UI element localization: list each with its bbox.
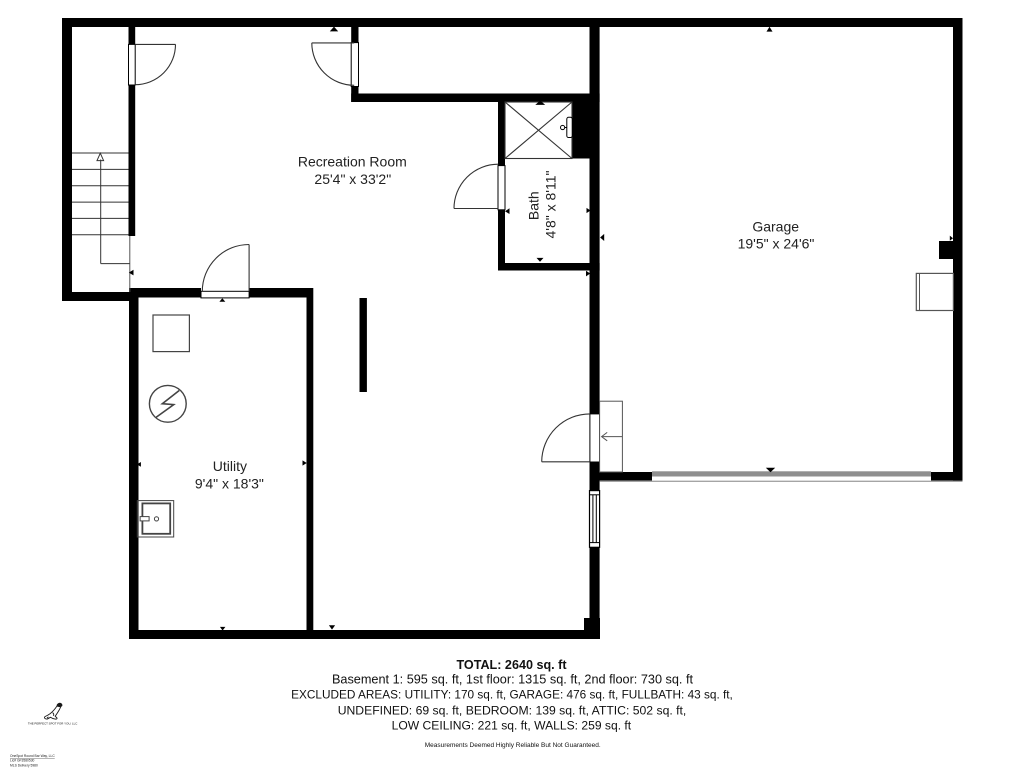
svg-text:EXCLUDED AREAS: UTILITY: 170 s: EXCLUDED AREAS: UTILITY: 170 sq. ft, GAR… [291, 688, 733, 702]
svg-text:Basement 1: 595 sq. ft, 1st fl: Basement 1: 595 sq. ft, 1st floor: 1315 … [332, 673, 694, 687]
svg-text:25'4" x 33'2": 25'4" x 33'2" [314, 171, 391, 187]
svg-text:4'8" x 8'11": 4'8" x 8'11" [542, 170, 558, 238]
svg-text:Lic# GF3580530: Lic# GF3580530 [10, 759, 35, 763]
svg-text:Utility: Utility [213, 458, 247, 474]
svg-text:Measurements Deemed Highly Rel: Measurements Deemed Highly Reliable But … [425, 742, 601, 749]
svg-text:19'5" x 24'6": 19'5" x 24'6" [738, 235, 815, 251]
svg-text:Recreation Room: Recreation Room [298, 153, 407, 169]
svg-text:THE PERFECT SPOT FOR YOU, LLC: THE PERFECT SPOT FOR YOU, LLC [28, 721, 77, 725]
svg-text:Garage: Garage [752, 218, 799, 234]
svg-text:9'4" x 18'3": 9'4" x 18'3" [195, 476, 264, 492]
svg-text:Bath: Bath [525, 191, 541, 220]
svg-text:TOTAL: 2640 sq. ft: TOTAL: 2640 sq. ft [456, 658, 567, 672]
svg-text:UNDEFINED: 69 sq. ft, BEDROOM:: UNDEFINED: 69 sq. ft, BEDROOM: 139 sq. f… [338, 703, 687, 717]
svg-text:MLS Delivery 5980: MLS Delivery 5980 [10, 764, 38, 768]
svg-text:OneSpot Round Bar Way, LLC: OneSpot Round Bar Way, LLC [10, 754, 55, 758]
svg-text:LOW CEILING: 221 sq. ft, WALLS: LOW CEILING: 221 sq. ft, WALLS: 259 sq. … [392, 718, 632, 732]
